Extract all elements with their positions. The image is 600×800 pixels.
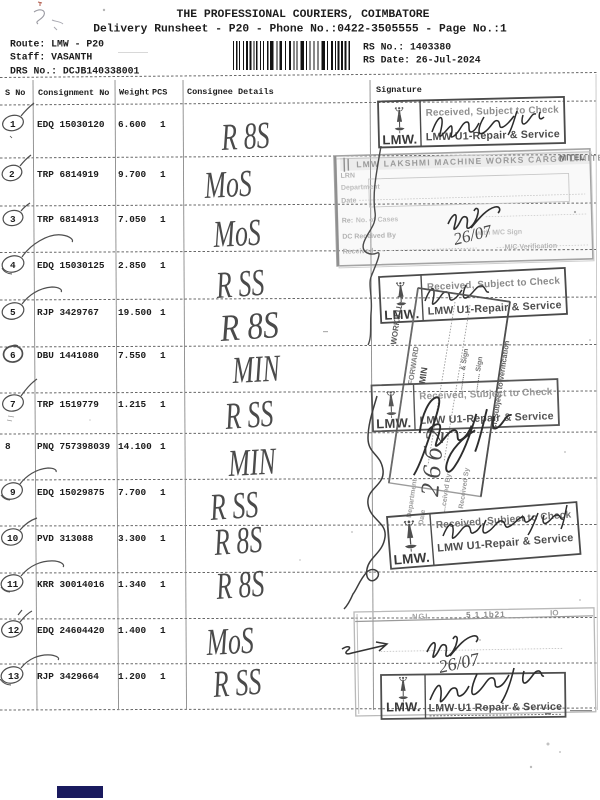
svg-text:1: 1 xyxy=(160,441,166,452)
svg-text:EDQ 24604420: EDQ 24604420 xyxy=(37,625,105,636)
svg-text:NGI: NGI xyxy=(412,612,428,621)
svg-text:LMW.: LMW. xyxy=(382,132,417,148)
svg-text:6.600: 6.600 xyxy=(118,119,147,130)
svg-text:1: 1 xyxy=(160,350,166,361)
svg-text:R SS: R SS xyxy=(214,262,266,307)
svg-text:10: 10 xyxy=(7,533,19,544)
svg-text:Route: LMW - P20: Route: LMW - P20 xyxy=(10,39,104,50)
svg-text:TRP 6814913: TRP 6814913 xyxy=(37,214,99,225)
svg-text:IO: IO xyxy=(550,608,559,617)
svg-text:5: 5 xyxy=(10,307,16,318)
svg-text:EDQ 15030125: EDQ 15030125 xyxy=(37,260,105,271)
svg-text:Signature: Signature xyxy=(376,85,422,95)
svg-text:RJP 3429767: RJP 3429767 xyxy=(37,307,99,318)
svg-text:S No: S No xyxy=(5,88,25,98)
svg-text:1.215: 1.215 xyxy=(118,399,147,410)
svg-text:PCS: PCS xyxy=(152,88,167,98)
svg-text:MoS: MoS xyxy=(204,620,254,665)
svg-text:MIN: MIN xyxy=(226,441,278,486)
svg-text:1: 1 xyxy=(160,579,166,590)
svg-text:MIN: MIN xyxy=(230,348,282,393)
svg-text:R 8S: R 8S xyxy=(218,303,280,349)
svg-text:R 8S: R 8S xyxy=(219,115,270,160)
svg-text:MITEL: MITEL xyxy=(559,152,585,163)
svg-text:TRP 6814919: TRP 6814919 xyxy=(37,169,99,180)
svg-text:1.200: 1.200 xyxy=(118,671,147,682)
svg-text:Delivery Runsheet - P20 - Phon: Delivery Runsheet - P20 - Phone No.:0422… xyxy=(93,24,507,36)
svg-text:RJP 3429664: RJP 3429664 xyxy=(37,671,99,682)
svg-text:LMW.: LMW. xyxy=(393,550,431,568)
svg-text:1: 1 xyxy=(160,671,166,682)
svg-text:RS No.: 1403380: RS No.: 1403380 xyxy=(363,42,451,53)
svg-text:7: 7 xyxy=(10,399,16,410)
svg-text:LRN: LRN xyxy=(340,172,355,179)
svg-text:MoS: MoS xyxy=(211,212,261,257)
svg-text:THE PROFESSIONAL COURIERS, COI: THE PROFESSIONAL COURIERS, COIMBATORE xyxy=(177,9,430,21)
svg-text:1: 1 xyxy=(10,119,16,130)
svg-text:1: 1 xyxy=(160,119,166,130)
svg-text:Staff: VASANTH: Staff: VASANTH xyxy=(10,52,92,63)
svg-text:TRP 1519779: TRP 1519779 xyxy=(37,399,99,410)
svg-text:No. of Cases: No. of Cases xyxy=(356,216,399,224)
svg-text:7.550: 7.550 xyxy=(118,350,147,361)
svg-text:Consignee Details: Consignee Details xyxy=(187,87,274,97)
svg-text:LMW.: LMW. xyxy=(386,699,421,714)
svg-text:LMW.: LMW. xyxy=(376,415,412,431)
svg-text:EDQ 15029875: EDQ 15029875 xyxy=(37,487,105,498)
svg-text:Received: Received xyxy=(343,248,374,256)
svg-text:1: 1 xyxy=(160,169,166,180)
svg-text:14.100: 14.100 xyxy=(118,441,152,452)
svg-text:1: 1 xyxy=(160,487,166,498)
svg-text:MoS: MoS xyxy=(202,163,252,208)
svg-text:6: 6 xyxy=(10,350,16,361)
svg-text:8: 8 xyxy=(5,441,11,452)
svg-text:DRS No.: DCJB140338001: DRS No.: DCJB140338001 xyxy=(10,66,139,77)
svg-text:PNQ 757398039: PNQ 757398039 xyxy=(37,441,111,452)
svg-text:Consignment No: Consignment No xyxy=(38,88,109,98)
svg-text:Re:: Re: xyxy=(342,217,353,224)
svg-text:7.050: 7.050 xyxy=(118,214,147,225)
svg-text:DBU 1441080: DBU 1441080 xyxy=(37,350,99,361)
svg-text:1: 1 xyxy=(160,260,166,271)
svg-text:19.500: 19.500 xyxy=(118,307,152,318)
svg-text:3.300: 3.300 xyxy=(118,533,147,544)
svg-text:5 1 1b21: 5 1 1b21 xyxy=(466,610,506,620)
svg-text:3: 3 xyxy=(10,214,16,225)
svg-text:4: 4 xyxy=(10,260,16,271)
svg-text:R SS: R SS xyxy=(211,661,263,706)
svg-text:13: 13 xyxy=(8,671,20,682)
svg-text:PVD 313088: PVD 313088 xyxy=(37,533,94,544)
svg-text:RS Date: 26-Jul-2024: RS Date: 26-Jul-2024 xyxy=(363,55,481,66)
svg-text:R 8S: R 8S xyxy=(212,519,264,564)
svg-text:Weight: Weight xyxy=(119,88,150,98)
svg-text:11: 11 xyxy=(7,579,19,590)
svg-text:R 8S: R 8S xyxy=(214,563,266,608)
svg-text:1.340: 1.340 xyxy=(118,579,147,590)
svg-text:2.850: 2.850 xyxy=(118,260,147,271)
svg-text:LMW U1 Repair & Service: LMW U1 Repair & Service xyxy=(429,701,563,715)
svg-text:R SS: R SS xyxy=(223,393,275,438)
svg-text:1: 1 xyxy=(160,533,166,544)
svg-text:1: 1 xyxy=(160,214,166,225)
svg-text:1: 1 xyxy=(160,625,166,636)
svg-text:Date: Date xyxy=(341,197,356,204)
svg-text:1: 1 xyxy=(160,399,166,410)
svg-text:1: 1 xyxy=(160,307,166,318)
svg-text:9: 9 xyxy=(10,487,16,498)
svg-text:2: 2 xyxy=(9,169,15,180)
svg-text:7.700: 7.700 xyxy=(118,487,147,498)
svg-text:1.400: 1.400 xyxy=(118,625,147,636)
svg-text:9.700: 9.700 xyxy=(118,169,147,180)
svg-text:KRR 30014016: KRR 30014016 xyxy=(37,579,105,590)
svg-text:EDQ 15030120: EDQ 15030120 xyxy=(37,119,105,130)
